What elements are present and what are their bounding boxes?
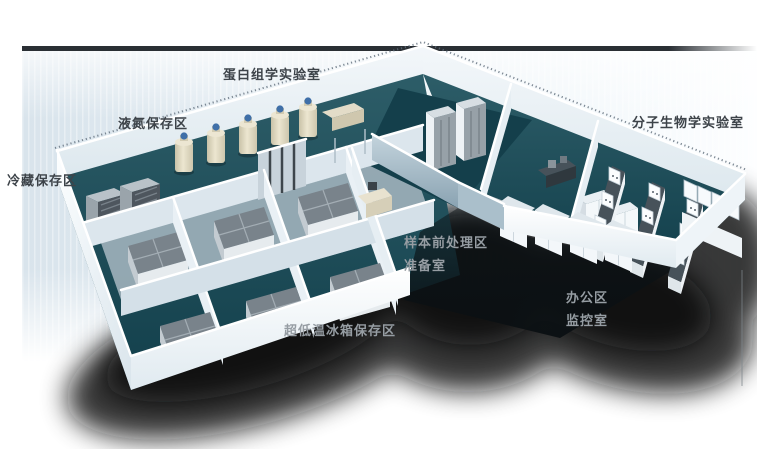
label-proteomics-lab: 蛋白组学实验室 — [223, 64, 321, 83]
label-liquid-nitrogen-storage: 液氮保存区 — [118, 113, 188, 132]
label-monitoring-room: 监控室 — [566, 310, 608, 329]
label-sample-pretreatment-area: 样本前处理区 — [404, 232, 488, 251]
label-molecular-biology-lab: 分子生物学实验室 — [632, 112, 744, 131]
label-cold-storage: 冷藏保存区 — [7, 170, 77, 189]
label-office-area: 办公区 — [566, 287, 608, 306]
lab-floorplan-scene: 蛋白组学实验室 液氮保存区 冷藏保存区 分子生物学实验室 样本前处理区 准备室 … — [0, 0, 757, 449]
label-ultralow-freezer-storage: 超低温冰箱保存区 — [284, 320, 396, 339]
label-preparation-room: 准备室 — [404, 255, 446, 274]
lab-3d-floorplan — [0, 0, 757, 449]
